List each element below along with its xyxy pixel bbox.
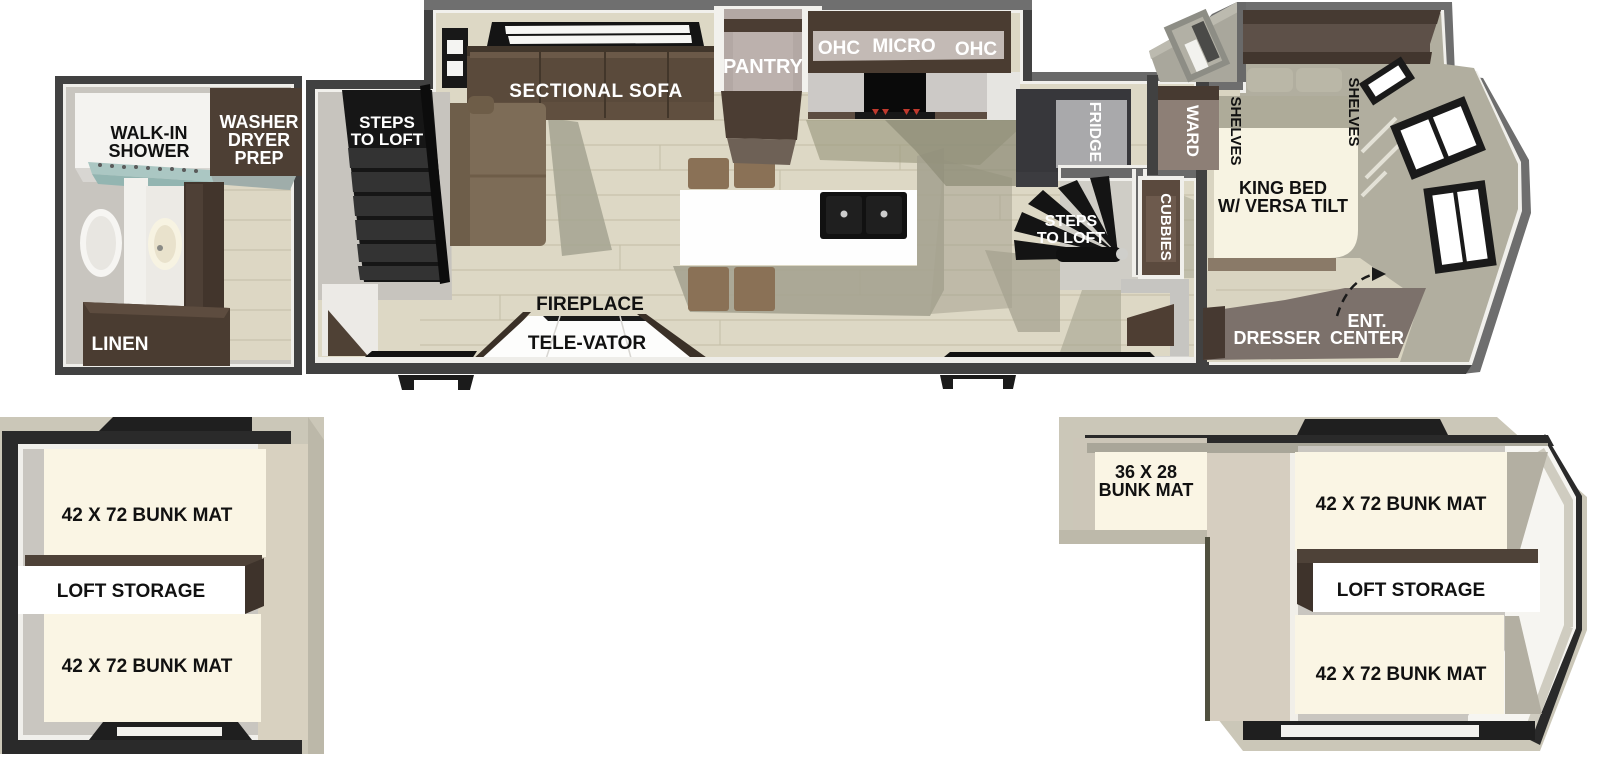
svg-text:WALK-IN: WALK-IN	[111, 123, 188, 143]
svg-text:SECTIONAL SOFA: SECTIONAL SOFA	[509, 81, 682, 102]
svg-text:42 X 72 BUNK MAT: 42 X 72 BUNK MAT	[1316, 494, 1487, 515]
svg-text:LINEN: LINEN	[92, 334, 149, 355]
svg-text:KING BED: KING BED	[1239, 178, 1327, 198]
svg-text:LOFT STORAGE: LOFT STORAGE	[1337, 580, 1485, 601]
svg-text:42 X 72 BUNK MAT: 42 X 72 BUNK MAT	[1316, 664, 1487, 685]
svg-text:W/ VERSA TILT: W/ VERSA TILT	[1218, 196, 1348, 216]
svg-text:DRESSER: DRESSER	[1233, 328, 1320, 348]
svg-text:DRYER: DRYER	[228, 130, 290, 150]
svg-text:WARD: WARD	[1183, 105, 1202, 157]
svg-text:OHC: OHC	[818, 38, 861, 59]
svg-text:FRIDGE: FRIDGE	[1086, 102, 1103, 163]
svg-text:PREP: PREP	[234, 148, 283, 168]
svg-text:STEPS: STEPS	[1045, 213, 1098, 230]
svg-text:MICRO: MICRO	[872, 36, 935, 57]
svg-text:PANTRY: PANTRY	[723, 56, 804, 78]
svg-text:TO LOFT: TO LOFT	[1037, 230, 1105, 247]
svg-text:42 X 72 BUNK MAT: 42 X 72 BUNK MAT	[62, 656, 233, 677]
svg-text:CENTER: CENTER	[1330, 328, 1404, 348]
svg-text:BUNK MAT: BUNK MAT	[1099, 480, 1194, 500]
svg-text:TELE-VATOR: TELE-VATOR	[528, 333, 647, 354]
svg-text:CUBBIES: CUBBIES	[1157, 193, 1174, 261]
svg-text:FIREPLACE: FIREPLACE	[536, 294, 644, 315]
svg-text:42 X 72 BUNK MAT: 42 X 72 BUNK MAT	[62, 505, 233, 526]
svg-text:36 X 28: 36 X 28	[1115, 462, 1177, 482]
svg-text:LOFT STORAGE: LOFT STORAGE	[57, 581, 205, 602]
svg-text:SHELVES: SHELVES	[1227, 97, 1244, 166]
svg-text:OHC: OHC	[955, 39, 998, 60]
svg-text:WASHER: WASHER	[219, 112, 298, 132]
svg-text:TO LOFT: TO LOFT	[351, 130, 424, 149]
svg-text:SHOWER: SHOWER	[109, 141, 190, 161]
svg-text:SHELVES: SHELVES	[1345, 78, 1362, 147]
